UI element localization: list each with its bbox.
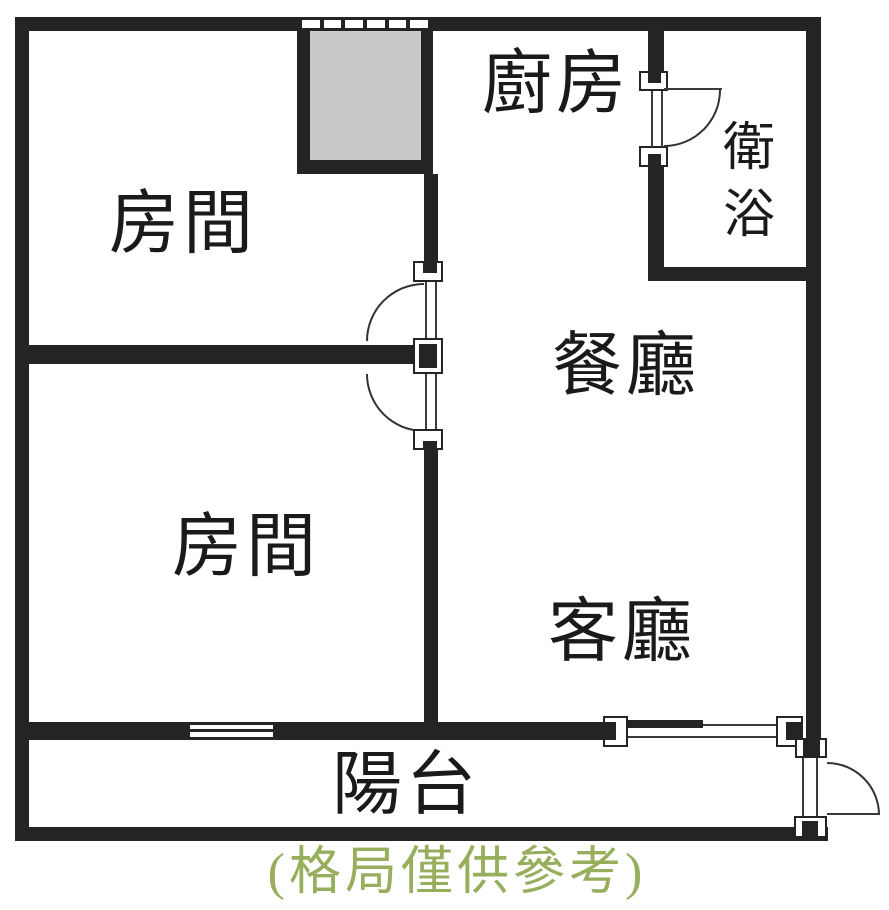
room-label-bathroom: 衛浴 xyxy=(721,115,777,249)
room-label-dining: 餐廳 xyxy=(552,332,700,402)
window-balcony-icon xyxy=(188,723,275,739)
wall-outer-bottom xyxy=(15,827,828,841)
door-swing-arc-bedroom-top xyxy=(366,283,424,341)
wall-end-cap xyxy=(802,821,818,836)
wall-outer-left xyxy=(15,17,29,841)
door-frame-line xyxy=(425,282,427,339)
wall-end-cap xyxy=(423,263,437,273)
wall-end-cap xyxy=(419,344,437,368)
room-label-bedroom-top: 房間 xyxy=(109,190,257,260)
sliding-door-leaf xyxy=(628,720,703,728)
window-pane xyxy=(324,20,342,28)
wall-central-lower xyxy=(424,450,438,722)
utility-shaft xyxy=(297,31,433,174)
wall-end-cap xyxy=(803,740,820,756)
door-swing-arc-bathroom xyxy=(664,90,721,147)
wall-balcony-divider xyxy=(29,722,603,740)
wall-bathroom-left-bot xyxy=(648,166,664,268)
window-pane xyxy=(367,20,385,28)
room-label-bedroom-bottom: 房間 xyxy=(172,513,320,583)
door-frame-line xyxy=(425,374,427,430)
door-frame-line xyxy=(651,91,653,147)
room-label-kitchen: 廚房 xyxy=(482,50,630,120)
door-frame-line xyxy=(802,758,804,817)
door-frame-line xyxy=(816,758,818,817)
sliding-door-track xyxy=(628,736,777,738)
wall-central-upper xyxy=(424,174,438,264)
wall-bedrooms-divider xyxy=(29,345,415,364)
window-pane xyxy=(302,20,320,28)
wall-end-cap xyxy=(648,73,661,83)
window-mullion xyxy=(190,729,273,732)
wall-outer-right xyxy=(806,17,821,741)
floor-plan: 廚房 衛浴 房間 餐廳 房間 客廳 陽台 (格局僅供參考) xyxy=(0,0,889,910)
room-label-balcony: 陽台 xyxy=(332,751,480,821)
window-top-icon xyxy=(299,17,431,31)
window-pane xyxy=(345,20,363,28)
door-frame-line xyxy=(435,282,437,339)
door-swing-arc-entrance xyxy=(827,762,880,815)
door-leaf xyxy=(827,813,880,815)
room-label-living: 客廳 xyxy=(548,598,696,668)
wall-end-cap xyxy=(605,722,616,740)
door-swing-arc-bedroom-bottom xyxy=(366,374,424,432)
wall-bathroom-bottom xyxy=(648,267,821,281)
plan-caption: (格局僅供參考) xyxy=(268,847,647,899)
wall-end-cap xyxy=(648,154,661,165)
window-pane xyxy=(410,20,428,28)
wall-bathroom-left-top xyxy=(648,31,664,73)
window-pane xyxy=(389,20,407,28)
wall-end-cap xyxy=(423,441,437,450)
door-frame-line xyxy=(661,91,663,147)
door-frame-line xyxy=(435,374,437,430)
